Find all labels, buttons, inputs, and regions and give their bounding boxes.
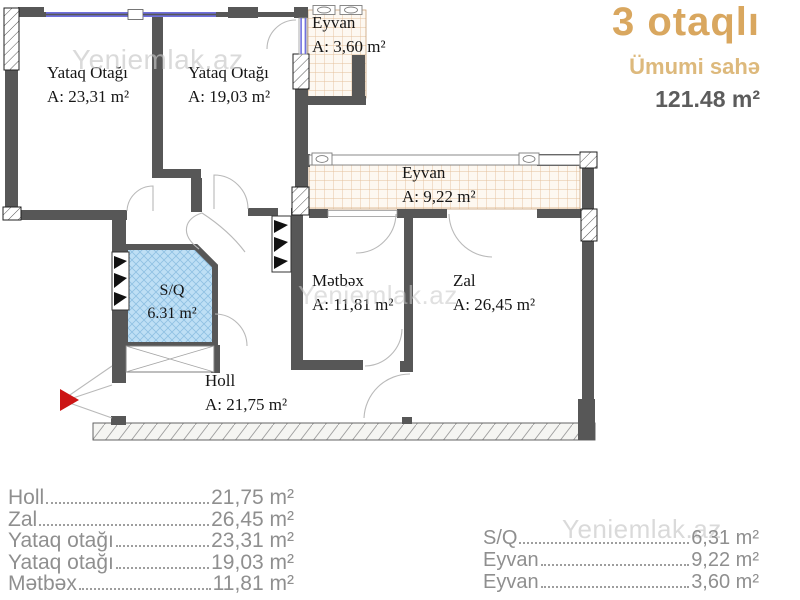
room-area: A: 3,60 m² [312,36,386,58]
legend-room-name: Zal [8,508,37,532]
legend-right: S/Q 6,31 m² Eyvan 9,22 m² Eyvan 3,60 m² [483,527,759,593]
legend-room-value: 3,60 m² [691,571,759,594]
room-area: A: 21,75 m² [205,394,287,416]
total-area-label: Ümumi sahə [440,54,760,80]
entrance-arrow [60,389,79,411]
room-label-hall: Holl A: 21,75 m² [205,370,287,416]
legend-row: S/Q 6,31 m² [483,527,759,549]
legend-row: Yataq otağı 19,03 m² [8,551,294,573]
legend-room-name: Mətbəx [8,572,77,596]
room-area: A: 19,03 m² [188,86,270,108]
floorplan-page: Yataq Otağı A: 23,31 m² Yataq Otağı A: 1… [0,0,800,600]
legend-left: Holl 21,75 m² Zal 26,45 m² Yataq otağı 2… [8,486,294,594]
legend-room-value: 26,45 m² [211,508,294,532]
legend-row: Holl 21,75 m² [8,486,294,508]
room-area: A: 23,31 m² [47,86,129,108]
room-area: A: 9,22 m² [402,186,476,208]
header: 3 otaqlı Ümumi sahə 121.48 m² [440,2,760,113]
leader-dots [79,588,211,590]
room-label-eyvan-small: Eyvan A: 3,60 m² [312,12,386,58]
leader-dots [46,502,209,504]
room-label-sq: S/Q 6.31 m² [132,281,212,325]
leader-dots [519,542,689,544]
room-label-zal: Zal A: 26,45 m² [453,270,535,316]
room-name: Eyvan [312,12,386,34]
legend-room-value: 21,75 m² [211,486,294,510]
legend-room-name: Eyvan [483,549,539,572]
leader-dots [541,586,690,588]
legend-room-name: Eyvan [483,571,539,594]
legend-room-name: Yataq otağı [8,529,114,553]
legend-room-value: 23,31 m² [211,529,294,553]
leader-dots [39,524,209,526]
legend-room-value: 11,81 m² [213,572,294,596]
leader-dots [541,564,690,566]
bottom-wall-hatched [93,423,595,440]
wardrobe [126,346,214,372]
room-area: A: 26,45 m² [453,294,535,316]
legend-room-value: 6,31 m² [691,527,759,550]
legend-row: Eyvan 3,60 m² [483,571,759,593]
total-area-value: 121.48 m² [440,86,760,113]
room-name: S/Q [132,281,212,302]
legend-row: Eyvan 9,22 m² [483,549,759,571]
leader-dots [116,567,209,569]
watermark: Yeniemlak.az [298,280,458,311]
page-title: 3 otaqlı [440,2,760,42]
legend-room-name: S/Q [483,527,517,550]
room-area: 6.31 m² [132,304,212,325]
legend-room-value: 19,03 m² [211,551,294,575]
room-name: Holl [205,370,287,392]
room-name: Eyvan [402,162,476,184]
legend-row: Mətbəx 11,81 m² [8,572,294,594]
legend-room-name: Holl [8,486,44,510]
legend-row: Yataq otağı 23,31 m² [8,529,294,551]
room-label-eyvan-large: Eyvan A: 9,22 m² [402,162,476,208]
room-name: Zal [453,270,535,292]
leader-dots [116,545,209,547]
legend-row: Zal 26,45 m² [8,508,294,530]
legend-room-value: 9,22 m² [691,549,759,572]
legend-room-name: Yataq otağı [8,551,114,575]
watermark: Yeniemlak.az [72,44,244,76]
